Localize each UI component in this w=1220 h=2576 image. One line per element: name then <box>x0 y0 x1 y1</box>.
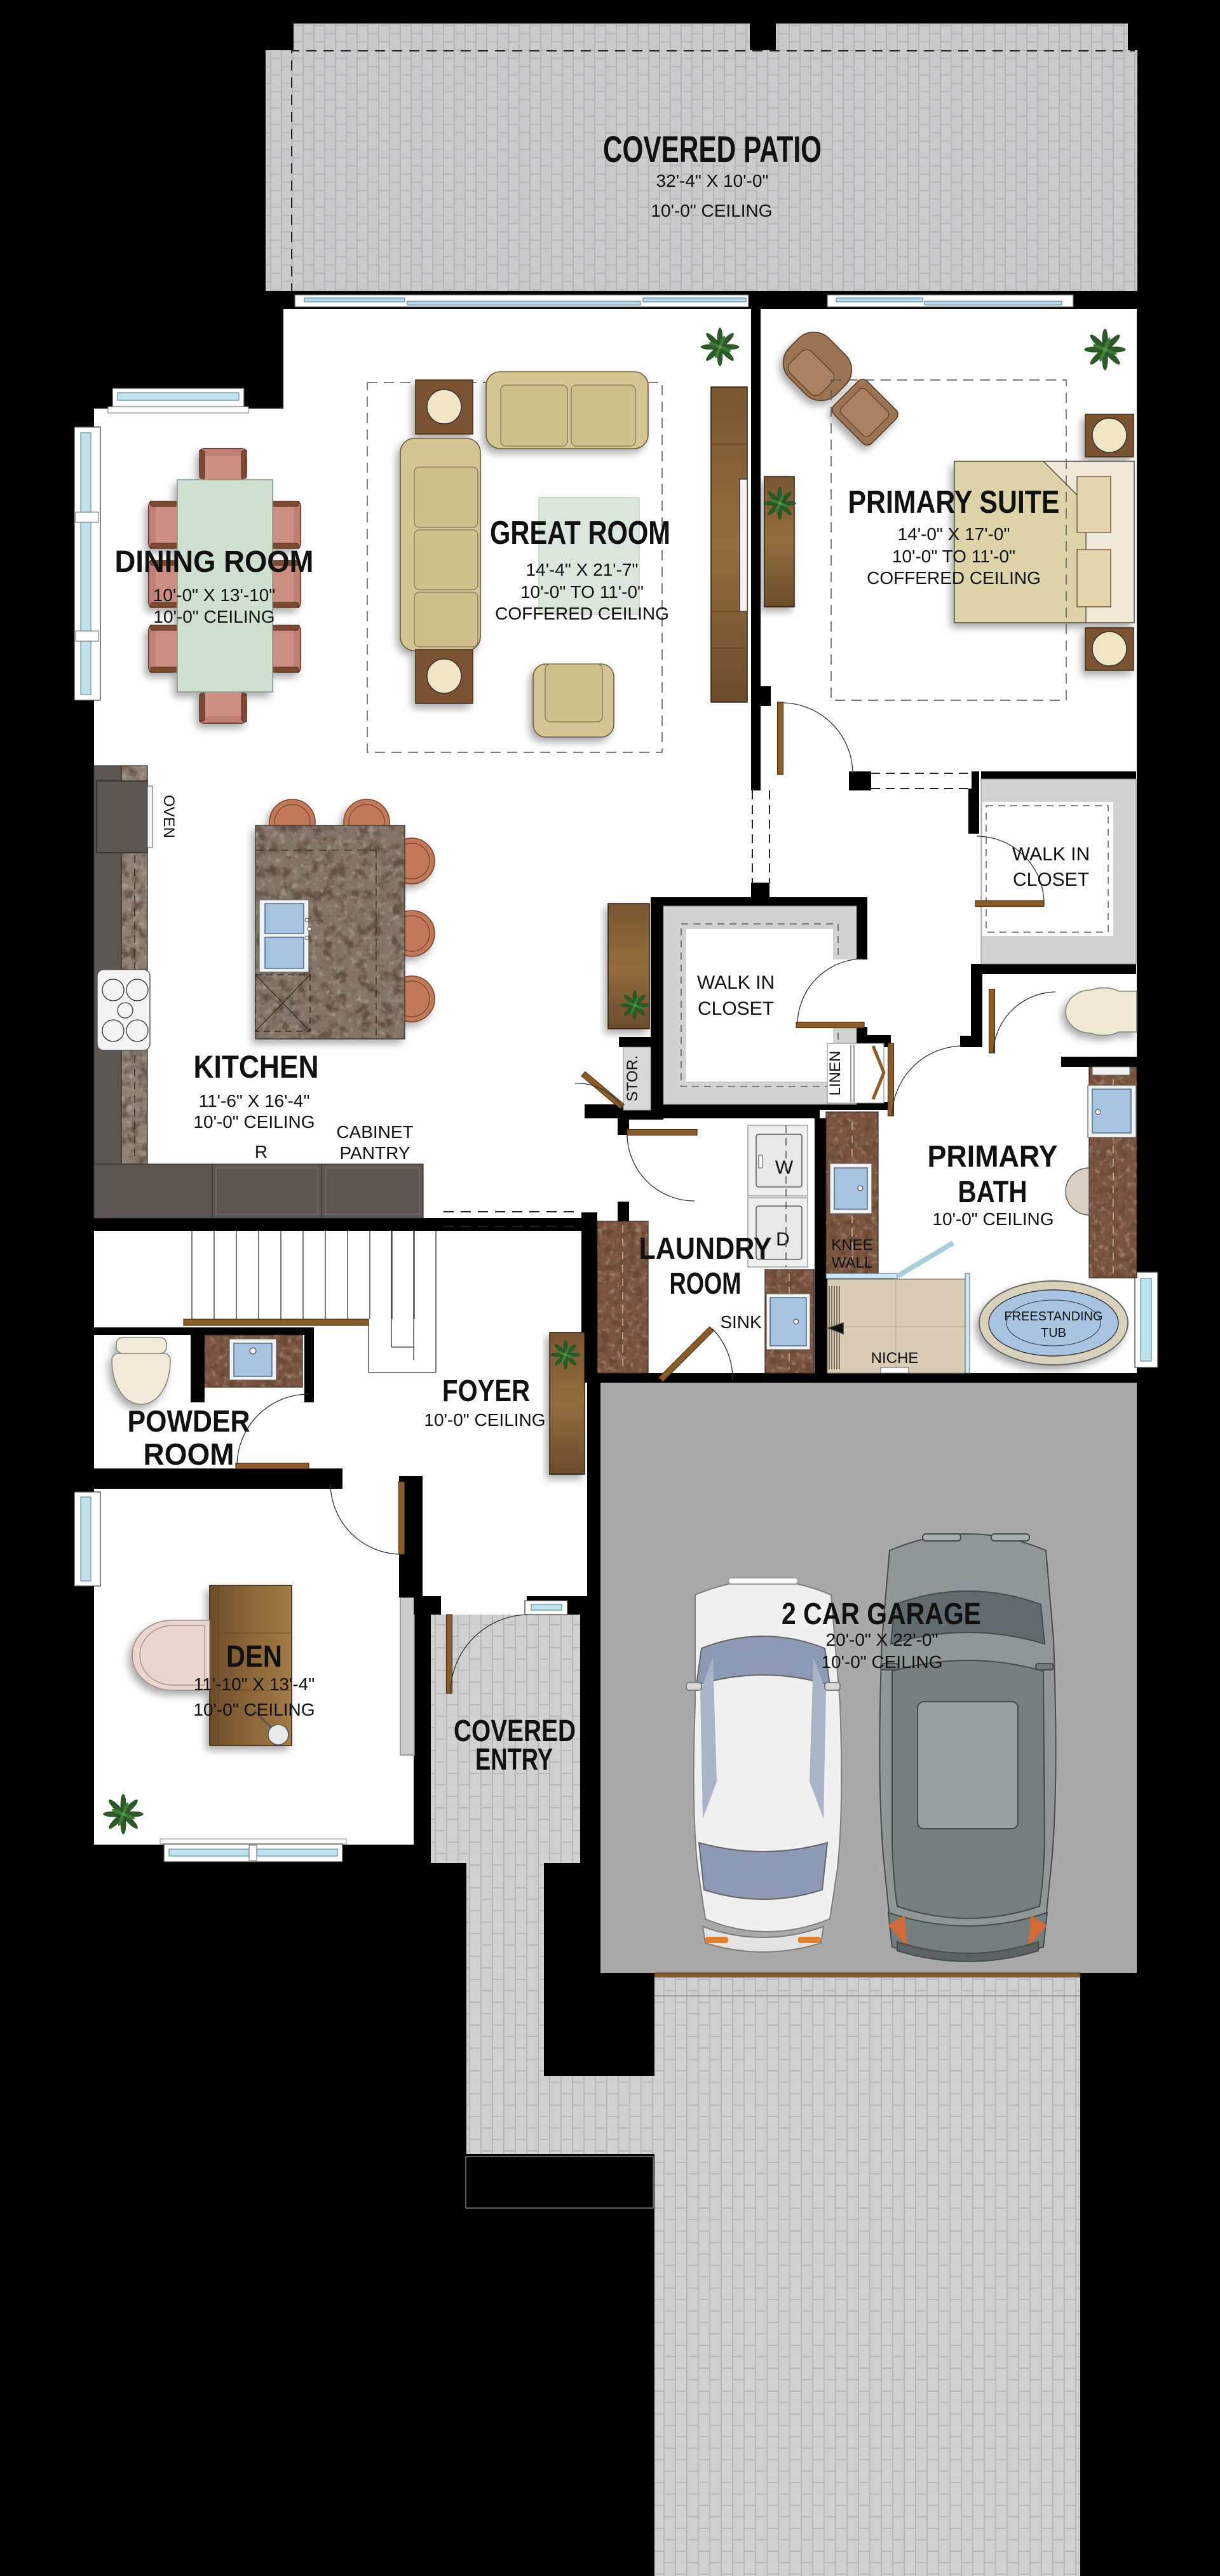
svg-text:KITCHEN: KITCHEN <box>194 1049 319 1085</box>
svg-text:20'-0" X 22'-0": 20'-0" X 22'-0" <box>826 1630 939 1650</box>
svg-text:KNEE: KNEE <box>831 1237 872 1254</box>
svg-text:COFFERED CEILING: COFFERED CEILING <box>867 568 1041 588</box>
svg-text:FREESTANDING: FREESTANDING <box>1004 1310 1102 1324</box>
svg-text:10'-0" CEILING: 10'-0" CEILING <box>651 201 772 220</box>
svg-text:2 CAR GARAGE: 2 CAR GARAGE <box>782 1597 981 1631</box>
svg-text:TUB: TUB <box>1041 1326 1066 1340</box>
svg-text:CABINET: CABINET <box>336 1122 413 1142</box>
svg-text:14'-4" X 21'-7": 14'-4" X 21'-7" <box>526 560 639 580</box>
svg-text:ROOM: ROOM <box>144 1438 234 1472</box>
svg-text:LINEN: LINEN <box>827 1051 844 1096</box>
svg-text:FOYER: FOYER <box>442 1374 530 1408</box>
svg-text:R: R <box>255 1142 268 1162</box>
svg-text:POWDER: POWDER <box>128 1405 250 1439</box>
svg-text:11'-6" X 16'-4": 11'-6" X 16'-4" <box>199 1091 310 1111</box>
svg-text:COVERED PATIO: COVERED PATIO <box>603 129 822 170</box>
svg-text:PRIMARY: PRIMARY <box>928 1140 1058 1174</box>
svg-text:WALL: WALL <box>832 1254 872 1271</box>
svg-text:COFFERED CEILING: COFFERED CEILING <box>495 604 669 623</box>
svg-text:14'-0" X 17'-0": 14'-0" X 17'-0" <box>898 524 1010 544</box>
svg-text:11'-10" X 13'-4": 11'-10" X 13'-4" <box>194 1674 315 1694</box>
svg-text:WALK IN: WALK IN <box>1012 844 1090 865</box>
svg-text:LAUNDRY: LAUNDRY <box>639 1232 772 1266</box>
svg-text:10'-0" CEILING: 10'-0" CEILING <box>424 1410 545 1430</box>
svg-text:SINK: SINK <box>720 1312 762 1332</box>
svg-text:10'-0" CEILING: 10'-0" CEILING <box>193 1700 315 1719</box>
svg-text:W: W <box>775 1157 794 1178</box>
svg-text:BATH: BATH <box>958 1176 1027 1209</box>
svg-text:CLOSET: CLOSET <box>698 998 774 1019</box>
svg-text:DINING ROOM: DINING ROOM <box>115 545 314 579</box>
svg-text:OVEN: OVEN <box>160 795 177 838</box>
svg-text:10'-0" TO 11'-0": 10'-0" TO 11'-0" <box>892 546 1015 566</box>
svg-text:PANTRY: PANTRY <box>340 1143 410 1163</box>
svg-text:ROOM: ROOM <box>670 1267 742 1301</box>
svg-text:10'-0" X 13'-10": 10'-0" X 13'-10" <box>153 585 275 605</box>
svg-text:STOR.: STOR. <box>624 1055 641 1102</box>
svg-text:D: D <box>776 1229 790 1250</box>
svg-text:PRIMARY SUITE: PRIMARY SUITE <box>848 484 1060 520</box>
svg-text:CLOSET: CLOSET <box>1013 869 1089 890</box>
svg-text:10'-0" CEILING: 10'-0" CEILING <box>193 1112 315 1132</box>
svg-text:10'-0" CEILING: 10'-0" CEILING <box>932 1209 1054 1229</box>
svg-text:10'-0" TO 11'-0": 10'-0" TO 11'-0" <box>520 582 644 602</box>
svg-text:NICHE: NICHE <box>871 1350 919 1367</box>
svg-text:32'-4" X 10'-0": 32'-4" X 10'-0" <box>656 171 769 191</box>
svg-text:DEN: DEN <box>226 1640 282 1674</box>
svg-text:GREAT ROOM: GREAT ROOM <box>490 515 670 552</box>
svg-text:10'-0" CEILING: 10'-0" CEILING <box>153 607 274 627</box>
svg-text:ENTRY: ENTRY <box>475 1743 553 1777</box>
svg-text:10'-0" CEILING: 10'-0" CEILING <box>821 1652 942 1672</box>
svg-text:WALK IN: WALK IN <box>697 972 775 993</box>
